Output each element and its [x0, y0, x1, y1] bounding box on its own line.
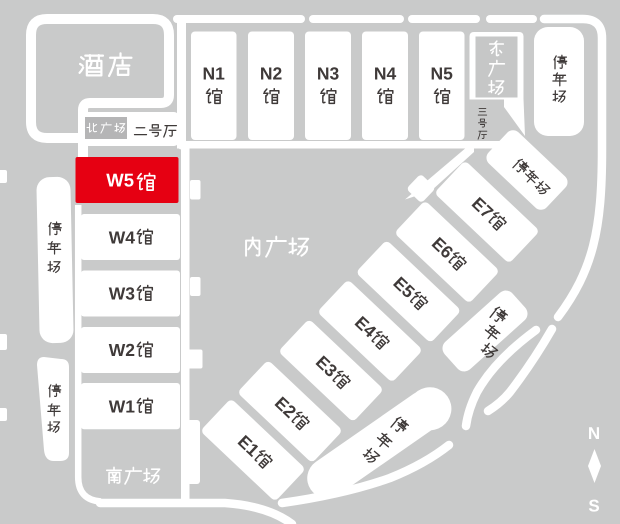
- svg-text:N3: N3: [317, 64, 340, 84]
- svg-text:W1: W1: [109, 396, 136, 416]
- svg-text:W3: W3: [109, 284, 136, 304]
- svg-text:N2: N2: [260, 64, 283, 84]
- svg-text:N1: N1: [203, 64, 226, 84]
- svg-text:W4: W4: [109, 228, 136, 248]
- svg-text:N5: N5: [431, 64, 454, 84]
- svg-text:W5: W5: [106, 170, 134, 191]
- svg-text:W2: W2: [109, 340, 136, 360]
- svg-text:N: N: [588, 424, 600, 443]
- svg-text:S: S: [588, 497, 599, 516]
- svg-text:N4: N4: [374, 64, 397, 84]
